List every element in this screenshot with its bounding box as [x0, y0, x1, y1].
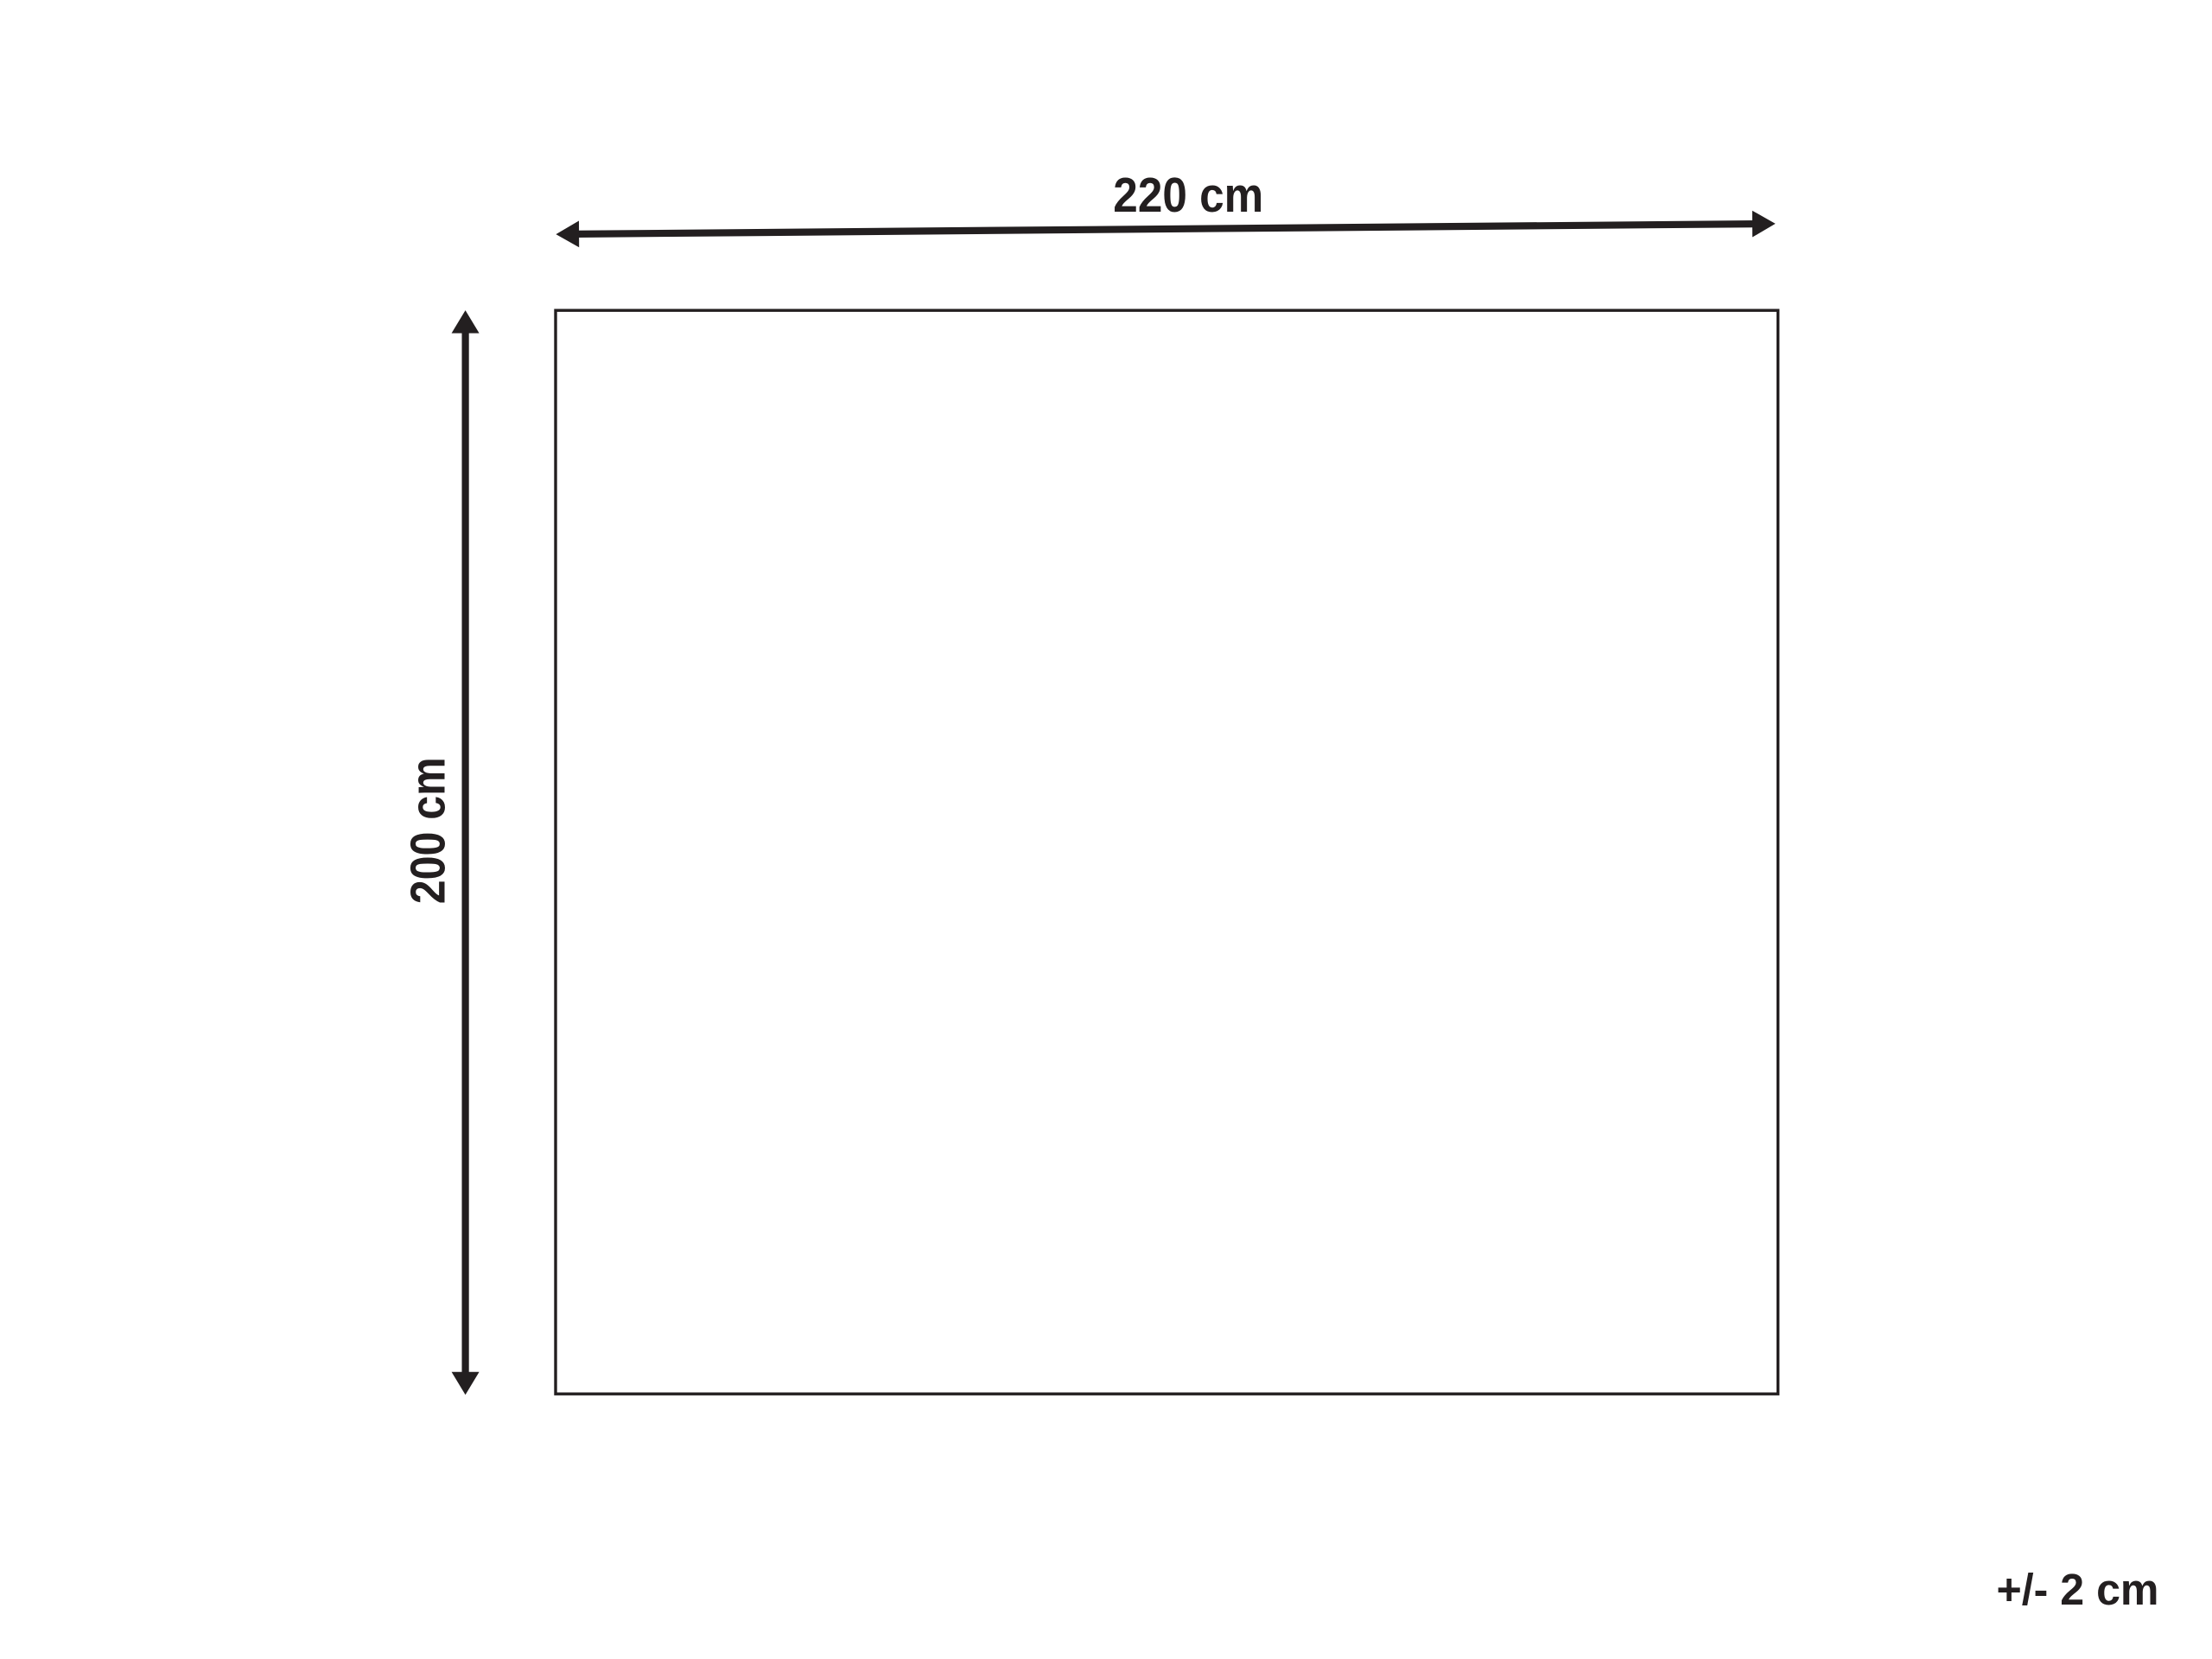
svg-text:200 cm: 200 cm	[400, 757, 454, 904]
svg-text:220 cm: 220 cm	[1113, 168, 1263, 222]
svg-text:+/- 2 cm: +/- 2 cm	[1997, 1564, 2159, 1614]
